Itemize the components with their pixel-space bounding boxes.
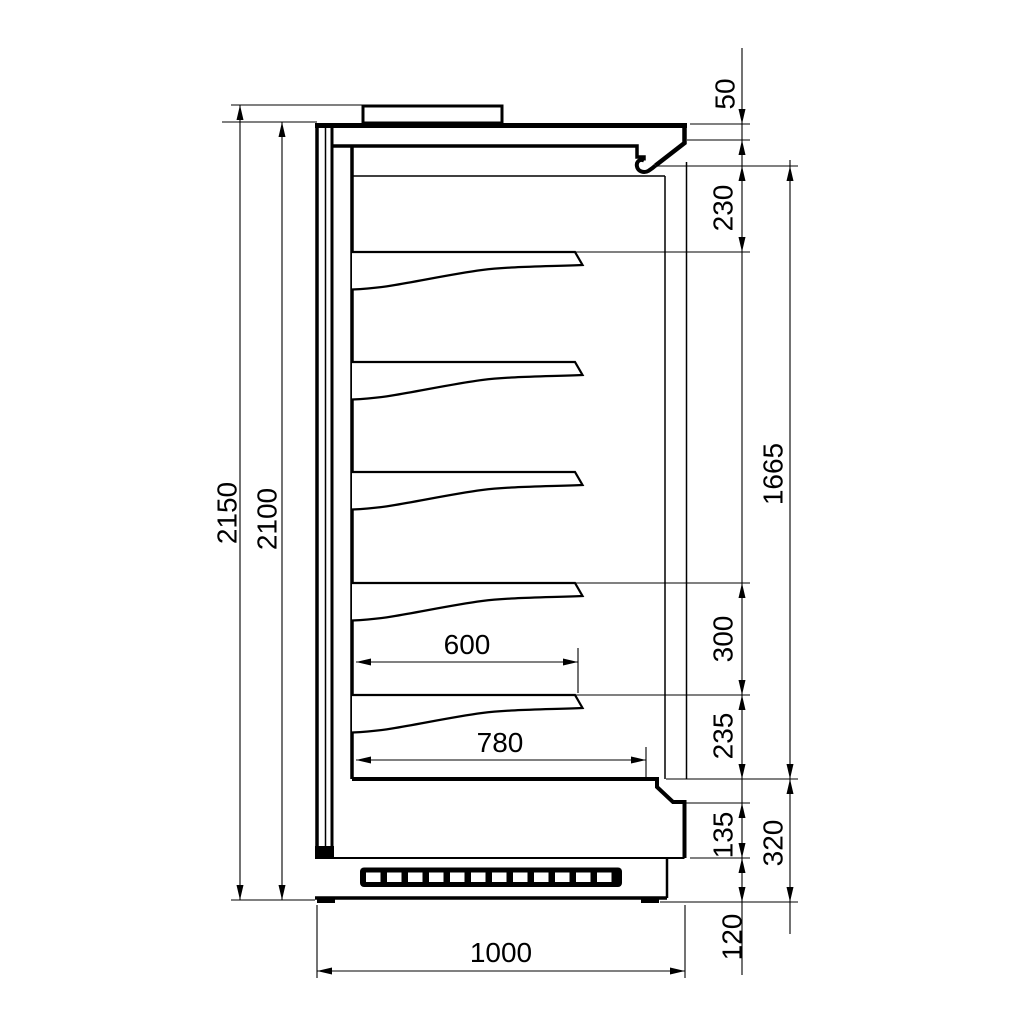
shelf-5 — [352, 695, 583, 733]
label-body-height: 2100 — [252, 488, 283, 550]
plinth — [315, 858, 685, 903]
label-front-step-height: 135 — [708, 812, 739, 859]
dimension-labels: 2150 2100 50 230 1665 300 235 135 320 12… — [212, 78, 789, 968]
back-wall — [315, 123, 334, 858]
label-bottom-deck-depth: 780 — [477, 727, 524, 758]
air-outlet-hook — [637, 160, 656, 172]
canopy-underside — [332, 146, 644, 161]
foot-left — [317, 898, 335, 903]
foot-right — [641, 898, 659, 903]
label-plinth-height: 120 — [717, 914, 748, 961]
label-overall-depth: 1000 — [470, 937, 532, 968]
top-assembly — [315, 106, 687, 172]
label-top-gap: 50 — [710, 78, 741, 109]
shelves — [352, 252, 583, 733]
shelf-2 — [352, 362, 583, 400]
shelf-1 — [352, 252, 583, 290]
label-base-height: 320 — [758, 820, 789, 867]
label-display-opening-height: 1665 — [758, 443, 789, 505]
drawing-canvas: 2150 2100 50 230 1665 300 235 135 320 12… — [0, 0, 1024, 1024]
cabinet-outline — [315, 106, 687, 903]
technical-drawing: 2150 2100 50 230 1665 300 235 135 320 12… — [0, 0, 1024, 1024]
label-shelf-depth: 600 — [444, 629, 491, 660]
label-lowest-shelf-gap: 235 — [708, 713, 739, 760]
shelf-4 — [352, 583, 583, 621]
ventilation-grille — [360, 868, 622, 888]
back-wall-base-block — [315, 846, 334, 858]
top-box — [363, 106, 502, 123]
label-shelf-pitch: 300 — [708, 616, 739, 663]
label-overall-height: 2150 — [212, 482, 243, 544]
canopy-front-face — [656, 123, 685, 166]
label-first-shelf-gap: 230 — [708, 185, 739, 232]
bottom-deck-profile — [352, 779, 685, 858]
shelf-3 — [352, 472, 583, 510]
